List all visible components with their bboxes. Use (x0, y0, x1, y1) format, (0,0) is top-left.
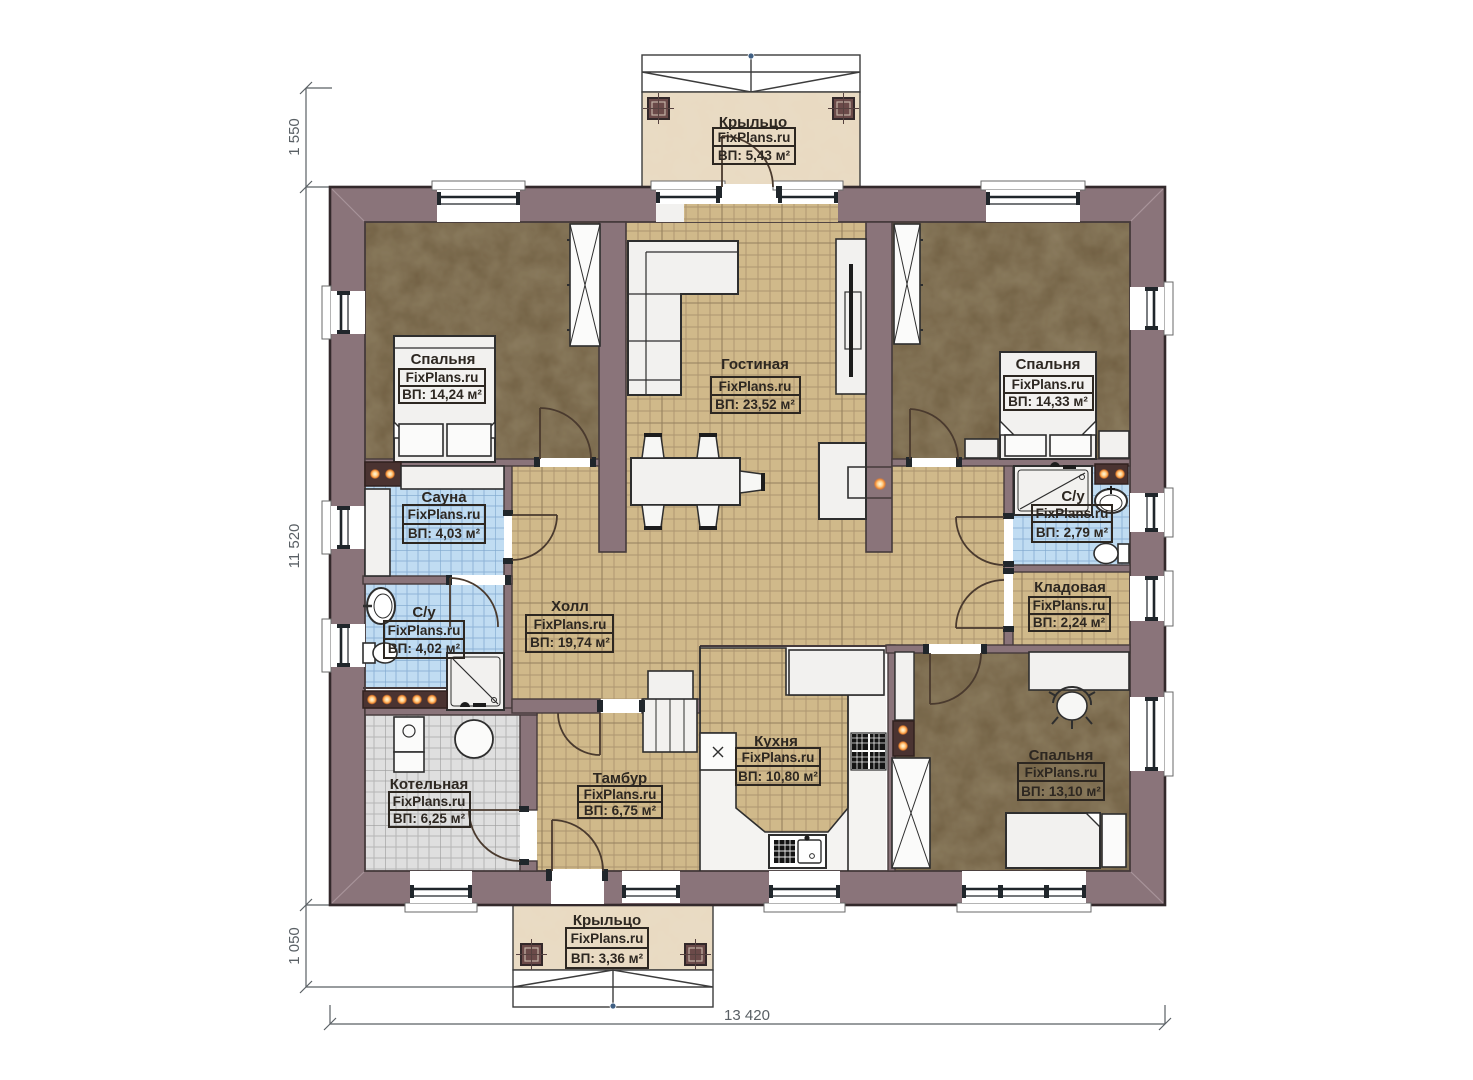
svg-text:Сауна: Сауна (421, 489, 467, 506)
svg-text:FixPlans.ru: FixPlans.ru (1036, 506, 1109, 521)
svg-text:13 420: 13 420 (724, 1007, 770, 1024)
svg-text:Тамбур: Тамбур (593, 770, 647, 787)
svg-text:ВП: 23,52 м²: ВП: 23,52 м² (715, 397, 795, 412)
svg-text:FixPlans.ru: FixPlans.ru (1033, 598, 1106, 613)
svg-text:ВП: 14,33 м²: ВП: 14,33 м² (1008, 394, 1088, 409)
svg-text:ВП: 4,02 м²: ВП: 4,02 м² (388, 641, 461, 656)
svg-text:Кладовая: Кладовая (1034, 579, 1106, 596)
svg-text:ВП: 3,36 м²: ВП: 3,36 м² (571, 951, 644, 966)
svg-text:FixPlans.ru: FixPlans.ru (718, 130, 791, 145)
svg-text:С/у: С/у (1061, 488, 1085, 505)
svg-text:ВП: 6,75 м²: ВП: 6,75 м² (584, 803, 657, 818)
svg-text:ВП: 14,24 м²: ВП: 14,24 м² (402, 387, 482, 402)
svg-text:Спальня: Спальня (411, 351, 476, 368)
svg-text:Крыльцо: Крыльцо (573, 912, 641, 929)
svg-text:ВП: 6,25 м²: ВП: 6,25 м² (393, 811, 466, 826)
svg-text:FixPlans.ru: FixPlans.ru (719, 379, 792, 394)
svg-text:ВП: 10,80 м²: ВП: 10,80 м² (738, 769, 818, 784)
svg-text:FixPlans.ru: FixPlans.ru (393, 794, 466, 809)
svg-text:С/у: С/у (412, 604, 436, 621)
svg-text:1 550: 1 550 (286, 118, 303, 156)
svg-text:ВП: 4,03 м²: ВП: 4,03 м² (408, 526, 481, 541)
svg-text:1 050: 1 050 (286, 927, 303, 965)
svg-text:FixPlans.ru: FixPlans.ru (534, 617, 607, 632)
svg-text:Спальня: Спальня (1029, 747, 1094, 764)
svg-text:FixPlans.ru: FixPlans.ru (406, 370, 479, 385)
svg-text:FixPlans.ru: FixPlans.ru (571, 931, 644, 946)
svg-text:FixPlans.ru: FixPlans.ru (1012, 377, 1085, 392)
svg-text:Гостиная: Гостиная (721, 356, 789, 373)
svg-text:Спальня: Спальня (1016, 356, 1081, 373)
svg-text:FixPlans.ru: FixPlans.ru (388, 623, 461, 638)
svg-text:ВП: 5,43 м²: ВП: 5,43 м² (718, 148, 791, 163)
svg-text:FixPlans.ru: FixPlans.ru (742, 750, 815, 765)
svg-text:ВП: 2,79 м²: ВП: 2,79 м² (1036, 525, 1109, 540)
svg-text:FixPlans.ru: FixPlans.ru (584, 787, 657, 802)
svg-text:ВП: 13,10 м²: ВП: 13,10 м² (1021, 784, 1101, 799)
svg-text:ВП: 19,74 м²: ВП: 19,74 м² (530, 635, 610, 650)
svg-text:Котельная: Котельная (390, 776, 469, 793)
svg-text:FixPlans.ru: FixPlans.ru (408, 507, 481, 522)
svg-text:ВП: 2,24 м²: ВП: 2,24 м² (1033, 615, 1106, 630)
svg-text:FixPlans.ru: FixPlans.ru (1025, 765, 1098, 780)
svg-text:11 520: 11 520 (286, 524, 303, 569)
svg-text:Холл: Холл (551, 598, 589, 615)
